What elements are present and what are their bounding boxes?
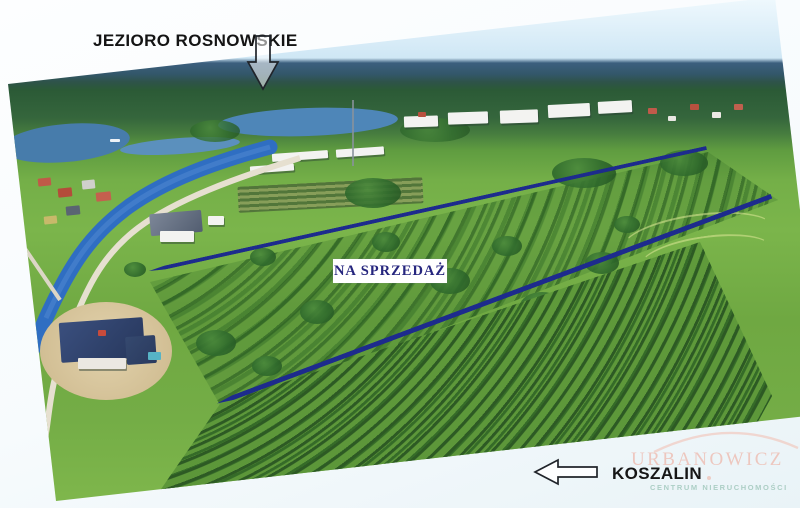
blue-tarp xyxy=(148,352,161,360)
watermark-tagline: CENTRUM NIERUCHOMOŚCI xyxy=(650,483,788,492)
construction-walls xyxy=(78,358,126,369)
watermark-brand-name: URBANOWICZ xyxy=(631,449,784,471)
left-road xyxy=(0,212,60,300)
house-body xyxy=(160,231,194,242)
bush xyxy=(124,262,146,277)
for-sale-badge: NA SPRZEDAŻ xyxy=(333,259,447,283)
bush xyxy=(372,232,400,252)
small-building xyxy=(208,216,224,225)
left-arrow-icon xyxy=(533,458,599,486)
listing-image: JEZIORO ROSNOWSKIE NA SPRZEDAŻ KOSZALIN … xyxy=(0,0,800,508)
equipment xyxy=(98,330,106,336)
bush xyxy=(492,236,522,256)
bush xyxy=(300,300,334,324)
watermark-dot xyxy=(707,476,711,480)
down-arrow-icon xyxy=(246,35,280,91)
tree-cluster xyxy=(345,178,401,208)
bush xyxy=(252,356,282,376)
bush xyxy=(250,248,276,266)
bush xyxy=(196,330,236,356)
construction-house-wing xyxy=(125,335,157,365)
